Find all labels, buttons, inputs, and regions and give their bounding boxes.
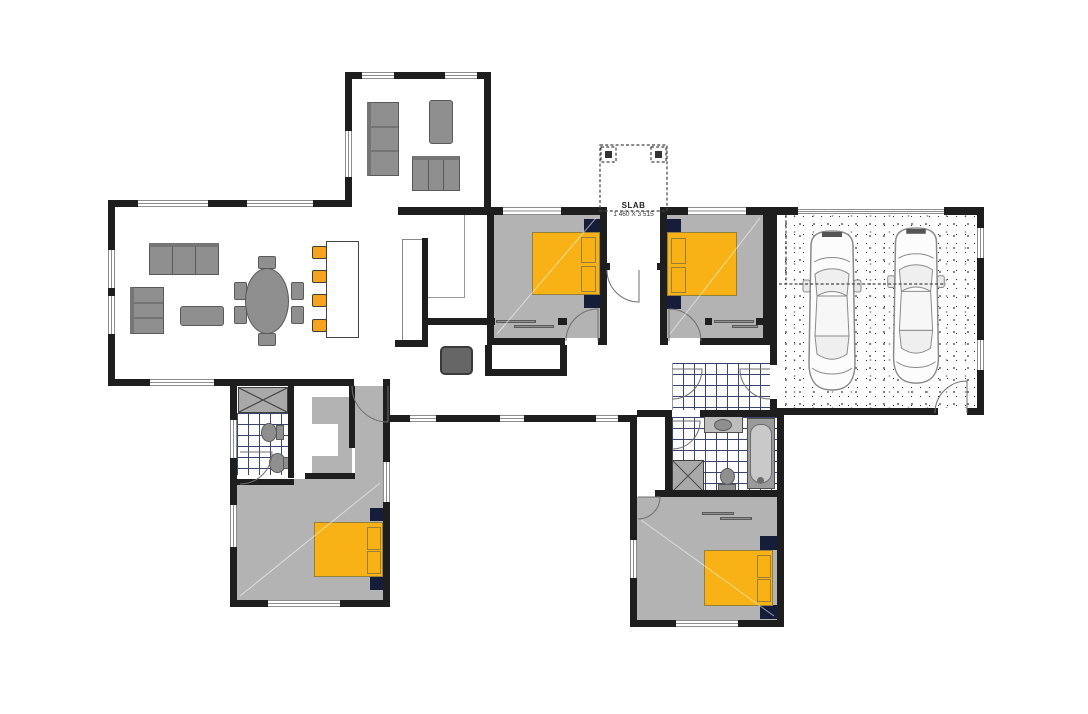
wardrobe-slider (720, 517, 752, 520)
floor-hall-main (388, 345, 637, 415)
wall-bed4-top (655, 490, 777, 497)
wall-garage-left-lower (770, 399, 777, 415)
toilet-icon (261, 423, 277, 442)
slab-dimensions: 1 460 X 3 515 (596, 211, 671, 218)
window-icon (108, 250, 115, 288)
toilet-icon (720, 468, 735, 485)
wall-bed2-left (487, 215, 494, 345)
wardrobe-slider (732, 325, 758, 328)
window-icon (268, 600, 340, 607)
window-icon (410, 415, 436, 422)
window-icon (138, 200, 208, 207)
wall-bed3-wardrobe-jamb-right (756, 318, 763, 325)
bed-pillow (367, 527, 381, 550)
desk-edge-vertical (464, 212, 465, 298)
wall-kitchen (422, 238, 428, 342)
wall-bed2-right (600, 215, 607, 345)
bar-stool-icon (312, 294, 327, 307)
nightstand (760, 536, 777, 550)
loveseat-icon (412, 156, 460, 191)
sofa-icon (149, 243, 219, 275)
window-icon (108, 296, 115, 334)
wardrobe-slider (514, 325, 554, 328)
wall-lounge-right (484, 79, 491, 207)
window-icon (362, 72, 394, 79)
window-icon (503, 207, 561, 215)
wall-living-east-stub (395, 340, 428, 347)
window-icon (345, 131, 352, 177)
wardrobe-slider (702, 512, 734, 515)
wall-hallcloset-bottom (485, 369, 567, 376)
wall-bed3-bottom-west (660, 338, 668, 345)
wall-bed2-wardrobe-jamb-left (487, 318, 495, 325)
wall-bed3-bottom-east (700, 338, 777, 345)
wall-bed3-right (763, 215, 770, 345)
toilet-cistern (276, 425, 284, 440)
bar-stool-icon (312, 246, 327, 259)
kitchen-island-icon (326, 241, 359, 338)
garage-door-panel (798, 209, 944, 214)
window-icon (230, 505, 237, 547)
wall-lounge-bottom (398, 207, 487, 215)
window-icon (383, 462, 390, 502)
porch-column-core (655, 151, 662, 158)
floor-laundry (672, 363, 770, 410)
window-icon (630, 540, 637, 578)
wall-garage-top-east (944, 207, 984, 215)
nightstand (760, 605, 777, 619)
wall-bath-left (665, 417, 672, 492)
bed-pillow (671, 267, 686, 293)
dining-chair-icon (291, 282, 304, 300)
wardrobe-slider (496, 320, 536, 323)
window-icon (977, 228, 984, 258)
dining-chair-icon (291, 306, 304, 324)
floor-bed4-corridor (637, 417, 665, 493)
wall-bed3-left (660, 215, 667, 345)
bed-pillow (671, 238, 686, 264)
bed-pillow (581, 237, 596, 263)
coffee-table-icon (180, 306, 224, 326)
desk-chair-icon (440, 346, 473, 375)
window-icon (676, 620, 738, 627)
shower-icon (238, 387, 288, 413)
bed-pillow (757, 579, 771, 602)
wall-robe-bottom (305, 473, 355, 479)
bathtub-drain (757, 477, 764, 484)
wall-front-door-jamb-left (600, 263, 610, 270)
porch-column-icon (651, 147, 666, 162)
wall-garage-bottom-west (770, 408, 938, 415)
wall-closet-top (423, 318, 487, 325)
wall-master-top-corner (383, 379, 390, 386)
bed-pillow (757, 555, 771, 578)
wall-front-door-jamb-right (657, 263, 667, 270)
wall-bed2-door-jamb (598, 338, 607, 345)
window-icon (500, 415, 524, 422)
laundry-west-edge (672, 363, 673, 410)
wall-wc-robe-divider (288, 386, 294, 478)
wall-wc-bottom (237, 479, 294, 485)
wall-garage-left-upper (770, 215, 777, 365)
bar-stool-icon (312, 319, 327, 332)
wall-robe-east (349, 386, 355, 448)
car-icon (800, 228, 864, 394)
slab-label: SLAB (600, 201, 667, 210)
wall-bed2-bottom (487, 338, 565, 345)
armchair-icon (130, 287, 164, 334)
robe-shelving-notch (312, 424, 338, 456)
bar-stool-icon (312, 270, 327, 283)
basin-icon (714, 419, 732, 431)
window-icon (977, 340, 984, 370)
floor-master-corridor (355, 386, 383, 480)
sofa-icon (367, 102, 399, 176)
floor-plan: SLAB 1 460 X 3 515 (0, 0, 1088, 714)
window-icon (688, 207, 746, 215)
wall-east-lower (777, 408, 784, 627)
wall-bath-top (700, 410, 777, 417)
wall-master-top (230, 379, 354, 386)
wall-laundry-south-west (637, 410, 672, 417)
wardrobe-slider (714, 320, 754, 323)
window-icon (596, 415, 618, 422)
floor-entry-hall (607, 215, 660, 347)
dining-chair-icon (258, 333, 276, 346)
wall-bed3-wardrobe-jamb-left (705, 318, 712, 325)
floor-hall-laundry-strip (637, 345, 777, 363)
window-icon (445, 72, 477, 79)
armchair-icon (429, 100, 453, 144)
wall-garage-top-west (770, 207, 798, 215)
kitchen-bench (402, 239, 423, 344)
shower-icon (672, 460, 704, 492)
window-icon (150, 379, 214, 386)
bed-pillow (581, 266, 596, 292)
porch-column-core (605, 151, 612, 158)
bathtub-inner (750, 424, 772, 483)
bed-pillow (367, 551, 381, 574)
dining-table-icon (245, 268, 289, 334)
desk-edge-horizontal (428, 297, 465, 298)
wall-garage-bottom-corner (967, 408, 984, 415)
wall-bed2-wardrobe-jamb-right (558, 318, 567, 325)
window-icon (230, 420, 237, 458)
porch-column-icon (601, 147, 616, 162)
wall-bed4-left (630, 422, 637, 627)
window-icon (247, 200, 313, 207)
car-icon (884, 225, 948, 387)
